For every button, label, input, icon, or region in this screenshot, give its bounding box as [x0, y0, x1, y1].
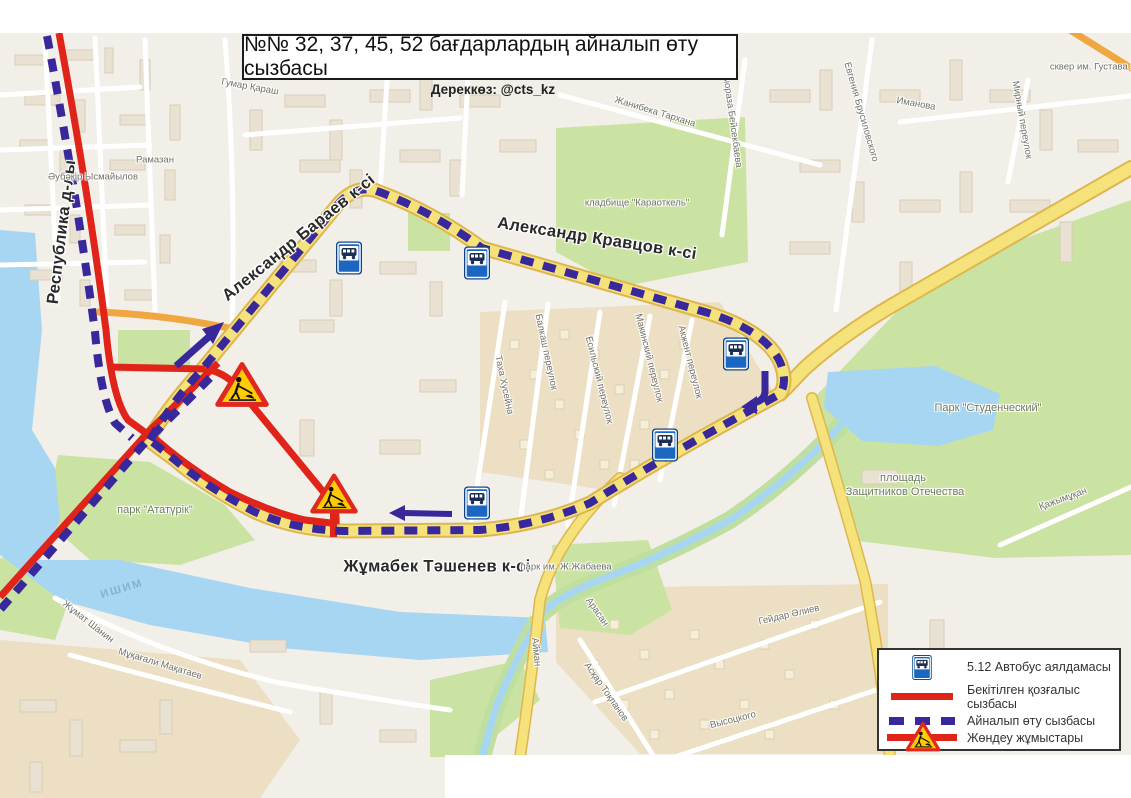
top-margin	[0, 0, 1131, 33]
legend: 5.12 Автобус аялдамасы Бекітілген қозғал…	[877, 648, 1121, 751]
solid-red-line-swatch	[891, 693, 953, 700]
bus-stop-sign-icon	[883, 655, 961, 680]
title-box: №№ 32, 37, 45, 52 бағдарлардың айналып ө…	[242, 34, 738, 80]
legend-row-approved-route: Бекітілген қозғалыс сызбасы	[883, 683, 1115, 711]
bus-stop-icon	[653, 429, 678, 461]
bus-stop-icon	[465, 487, 490, 519]
legend-label: Бекітілген қозғалыс сызбасы	[967, 683, 1115, 711]
legend-label: Жөндеу жұмыстары	[967, 731, 1083, 745]
legend-label: 5.12 Автобус аялдамасы	[967, 660, 1111, 674]
map-title: №№ 32, 37, 45, 52 бағдарлардың айналып ө…	[244, 33, 736, 81]
roadworks-icon	[905, 721, 941, 753]
map-canvas: Республика д-лыАлександр Бараев к-сіАлек…	[0, 0, 1131, 798]
bus-stop-icon	[724, 338, 749, 370]
bus-stop-icon	[337, 242, 362, 274]
legend-row-roadworks: Жөндеу жұмыстары	[883, 731, 1115, 745]
bottom-margin	[445, 755, 1131, 798]
bus-stop-icon	[465, 247, 490, 279]
source-credit: Дереккөз: @cts_kz	[343, 82, 643, 97]
legend-row-bus-stop: 5.12 Автобус аялдамасы	[883, 655, 1115, 680]
legend-label: Айналып өту сызбасы	[967, 714, 1095, 728]
